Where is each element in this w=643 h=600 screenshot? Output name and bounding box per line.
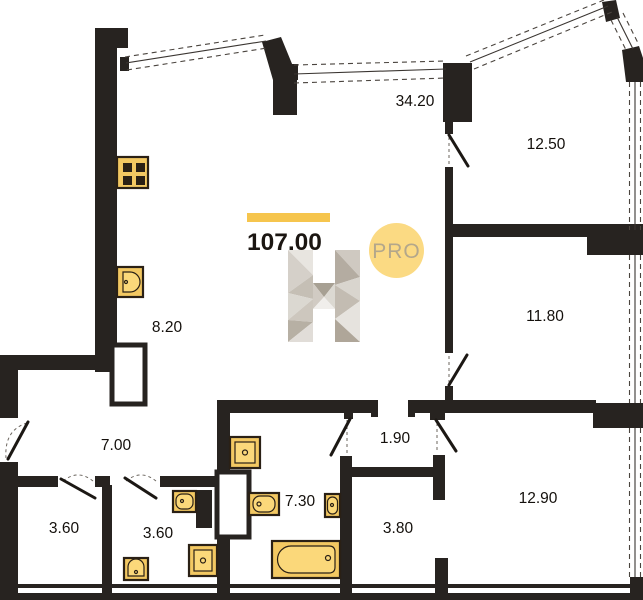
wall-segment: [445, 386, 453, 402]
wall-segment: [120, 57, 129, 71]
wall-segment: [340, 456, 352, 584]
area-label-bedroom-bottom-right: 12.90: [519, 490, 558, 507]
area-label-wc-left: 3.60: [49, 520, 80, 537]
wall-gap: [112, 588, 217, 593]
door-bathroom: [331, 419, 350, 455]
floor-plan: 107.00 PRO 34.20 8.20 12.50 11.80 12.90 …: [0, 0, 643, 600]
wall-segment: [445, 167, 453, 353]
wall-segment: [217, 400, 372, 413]
wall-segment: [217, 537, 230, 584]
kitchen-sink-icon: [117, 267, 143, 297]
washbasin-icon: [173, 491, 196, 512]
shaft: [217, 472, 249, 537]
window-right-band-2: [630, 255, 641, 403]
area-label-wc-middle: 3.60: [143, 525, 174, 542]
area-label-bedroom-top-right: 12.50: [527, 136, 566, 153]
wall-segment: [95, 28, 117, 372]
wall-segment: [587, 230, 643, 255]
pro-badge-label: PRO: [372, 240, 421, 263]
wall-segment: [630, 577, 643, 600]
window-right-band-1: [630, 82, 641, 230]
wall-segment: [622, 46, 643, 82]
stove-icon: [117, 157, 148, 188]
window-right-band-3: [630, 428, 641, 577]
wall-segment: [102, 485, 112, 584]
washbasin-icon: [325, 494, 340, 517]
wall-segment: [443, 63, 472, 122]
wall-gap: [448, 588, 630, 593]
bathtub-icon: [272, 541, 340, 578]
wall-segment: [344, 412, 353, 419]
area-label-corridor: 1.90: [380, 430, 411, 447]
wall-segment: [196, 490, 212, 528]
wall-segment: [0, 355, 18, 418]
wall-segment: [430, 403, 445, 420]
wall-segment: [217, 400, 230, 472]
pro-badge: PRO: [369, 223, 424, 278]
window-living-main: [294, 61, 446, 83]
wall-segment: [433, 455, 445, 500]
floor-plan-page: 107.00 PRO 34.20 8.20 12.50 11.80 12.90 …: [0, 0, 643, 600]
wall-gap: [352, 588, 435, 593]
logo-watermark-h: [288, 250, 360, 342]
area-label-hallway: 7.00: [101, 437, 132, 454]
washbasin-icon: [249, 493, 279, 515]
area-label-inner-hall: 3.80: [383, 520, 414, 537]
wall-segment: [160, 476, 217, 487]
wall-segment: [289, 64, 298, 80]
wall-gap: [18, 588, 102, 593]
door-bedroom-bottom-right: [436, 420, 456, 451]
area-label-bathroom: 7.30: [285, 493, 316, 510]
accent-bar: [247, 213, 330, 222]
toilet-icon: [230, 437, 260, 468]
door-bedroom-right: [449, 355, 467, 385]
wall-segment: [593, 403, 643, 428]
door-wc-middle: [125, 475, 156, 498]
area-label-kitchen-zone: 8.20: [152, 319, 183, 336]
wall-gap: [230, 588, 340, 593]
window-kitchen-diagonal: [125, 35, 267, 70]
door-bedroom-top-right: [449, 135, 468, 166]
washbasin-icon: [124, 558, 148, 580]
door-entrance: [6, 422, 28, 459]
toilet-icon: [189, 545, 217, 576]
wall-segment: [371, 400, 378, 417]
wall-segment: [0, 462, 18, 584]
wardrobe: [112, 345, 145, 404]
window-topright-diagonal: [466, 0, 612, 69]
wall-segment: [445, 122, 453, 134]
door-wc-left: [61, 475, 95, 498]
wall-segment: [18, 476, 58, 487]
wall-segment: [352, 467, 433, 477]
area-label-living-kitchen: 34.20: [396, 93, 435, 110]
area-label-bedroom-right: 11.80: [526, 308, 564, 325]
